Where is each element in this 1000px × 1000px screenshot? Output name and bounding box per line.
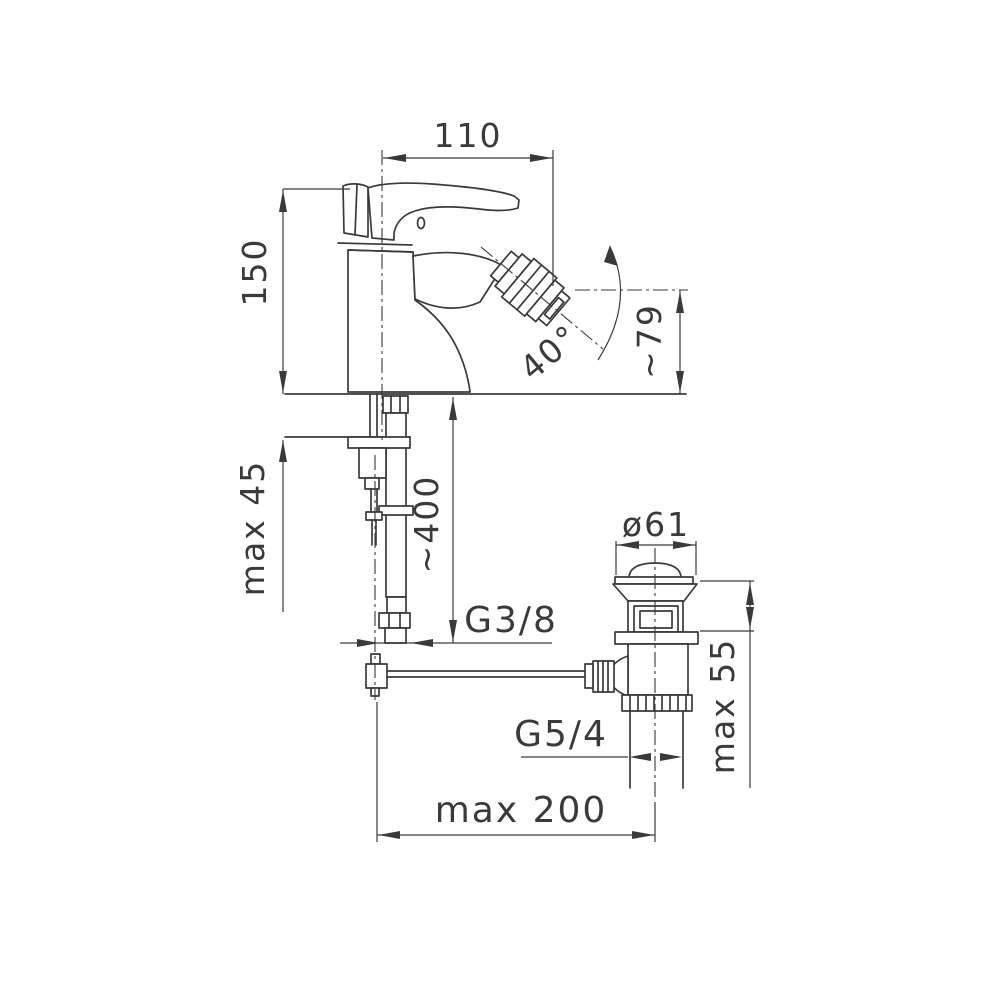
dim-o61-label: ø61	[622, 505, 690, 544]
technical-drawing-page: 110 150 max 45 ~79 40° ~400 G3/8	[0, 0, 1000, 1000]
handle-lever	[368, 183, 519, 240]
dim-110-label: 110	[434, 116, 503, 155]
dim-max200-label: max 200	[435, 790, 608, 831]
dimension-deck-thickness: max 45	[233, 440, 287, 612]
dim-400-label: ~400	[407, 475, 446, 574]
swivel-arc-arrowhead	[604, 245, 618, 266]
bidet-mixer-drawing: 110 150 max 45 ~79 40° ~400 G3/8	[0, 0, 1000, 1000]
dimension-body-height: 150	[235, 189, 350, 394]
callout-drain-thread: G5/4	[514, 714, 682, 761]
dimension-basin-clamp: max 55	[700, 581, 754, 788]
rod-port-stub	[585, 664, 593, 688]
lever-screw-detail	[418, 218, 425, 229]
spout-housing	[413, 253, 503, 309]
dim-max45-label: max 45	[233, 460, 272, 596]
dim-150-label: 150	[235, 238, 274, 307]
dim-g54-label: G5/4	[514, 714, 608, 755]
dim-g38-label: G3/8	[464, 600, 558, 641]
plug-plate	[615, 577, 693, 584]
dim-max55-label: max 55	[703, 638, 742, 774]
mounting-deck	[285, 394, 686, 437]
callout-hose-thread: G3/8	[340, 600, 558, 647]
drain-ring-nut	[622, 695, 692, 711]
hose-top-ferrule	[383, 396, 408, 413]
rod-clevis	[366, 664, 387, 688]
rod-collar	[366, 512, 382, 520]
hose-lower-ferrule	[387, 597, 406, 613]
dimension-hose-length: ~400	[407, 397, 457, 643]
hose-thread-tube	[385, 628, 406, 643]
drain-clamp-flange	[615, 632, 698, 644]
dim-79-label: ~79	[630, 303, 669, 379]
dimension-outlet-height: ~79	[630, 290, 684, 394]
dim-40deg-label: 40°	[512, 317, 586, 388]
drain-window-inner	[640, 611, 672, 628]
washer-plate	[348, 437, 410, 448]
faucet-mixer	[338, 183, 519, 392]
hose-nut	[379, 613, 410, 628]
drain-body-tube	[628, 644, 688, 695]
